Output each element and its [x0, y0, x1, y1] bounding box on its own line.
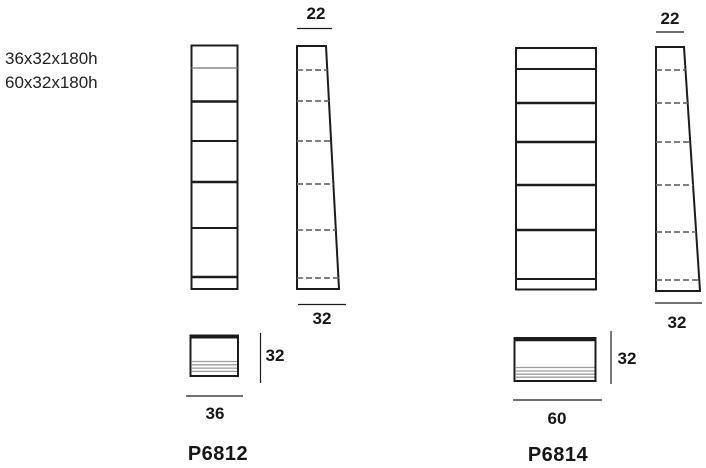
p6812-side-depth-label: 32 — [313, 310, 332, 327]
product-spec-sheet: 36x32x180h 60x32x180h 22 32 32 36 P6812 … — [0, 0, 706, 468]
p6814-plan-depth-label: 32 — [618, 350, 637, 367]
technical-drawing — [0, 0, 706, 468]
p6814-plan-view — [514, 338, 597, 381]
p6814-side-depth-label: 32 — [668, 314, 687, 331]
p6814-top-width-label: 22 — [661, 10, 680, 27]
size-spec-line: 60x32x180h — [5, 71, 98, 95]
p6814-side-view — [656, 47, 700, 291]
p6812-plan-view — [190, 336, 239, 377]
p6814-plan-width-label: 60 — [548, 410, 567, 427]
p6812-front-view — [192, 46, 238, 290]
p6814-product-code: P6814 — [528, 445, 588, 465]
p6812-plan-depth-label: 32 — [266, 347, 285, 364]
p6812-plan-width-label: 36 — [206, 405, 225, 422]
p6812-product-code: P6812 — [188, 444, 248, 464]
p6812-top-width-label: 22 — [307, 5, 326, 22]
p6812-side-view — [297, 46, 339, 289]
size-spec-line: 36x32x180h — [5, 47, 98, 71]
p6814-front-view — [516, 48, 596, 290]
size-spec-list: 36x32x180h 60x32x180h — [5, 47, 98, 95]
